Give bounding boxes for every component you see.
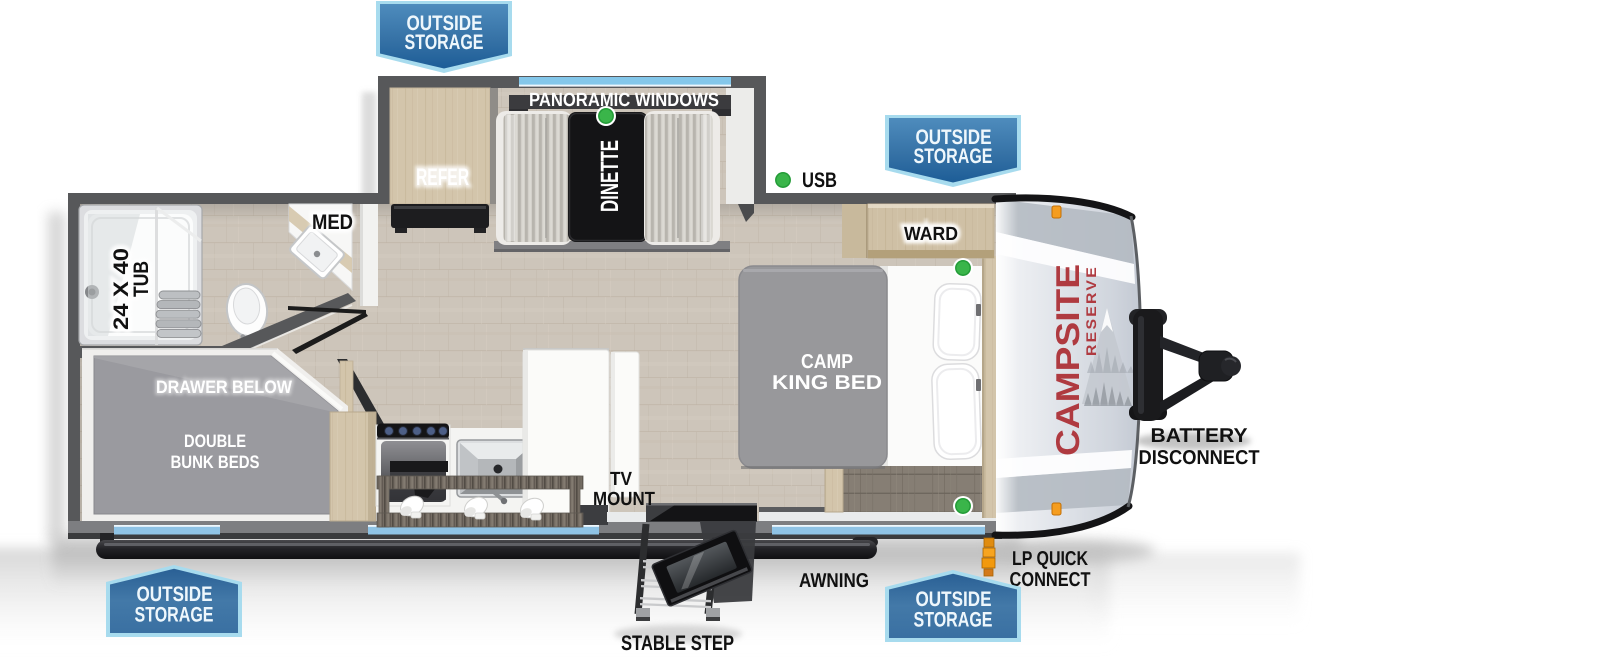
svg-text:BUNK BEDS: BUNK BEDS [171,452,260,472]
svg-text:DRAWER BELOW: DRAWER BELOW [156,377,292,397]
svg-text:TUB: TUB [130,261,153,297]
svg-text:PANORAMIC WINDOWS: PANORAMIC WINDOWS [529,90,719,111]
svg-text:STORAGE: STORAGE [135,604,214,627]
svg-text:STORAGE: STORAGE [914,609,993,632]
svg-text:KING BED: KING BED [772,372,882,394]
svg-text:TV: TV [610,469,632,490]
svg-text:AWNING: AWNING [799,570,869,592]
svg-text:STORAGE: STORAGE [405,31,484,54]
svg-text:DINETTE: DINETTE [596,140,624,212]
svg-text:DISCONNECT: DISCONNECT [1139,447,1260,469]
svg-text:RESERVE: RESERVE [1083,265,1099,356]
svg-text:CONNECT: CONNECT [1010,569,1091,591]
svg-text:REFER: REFER [416,164,469,191]
svg-text:MED: MED [312,211,353,234]
svg-text:STORAGE: STORAGE [914,145,993,168]
svg-text:STABLE STEP: STABLE STEP [621,632,734,655]
svg-text:BATTERY: BATTERY [1151,425,1249,447]
svg-text:CAMPSITE: CAMPSITE [1049,264,1086,456]
svg-text:MOUNT: MOUNT [593,489,655,510]
svg-text:WARD: WARD [904,224,958,245]
svg-text:LP QUICK: LP QUICK [1012,548,1088,570]
svg-text:CAMP: CAMP [801,351,853,373]
svg-text:DOUBLE: DOUBLE [184,431,246,451]
svg-text:USB: USB [802,169,837,192]
